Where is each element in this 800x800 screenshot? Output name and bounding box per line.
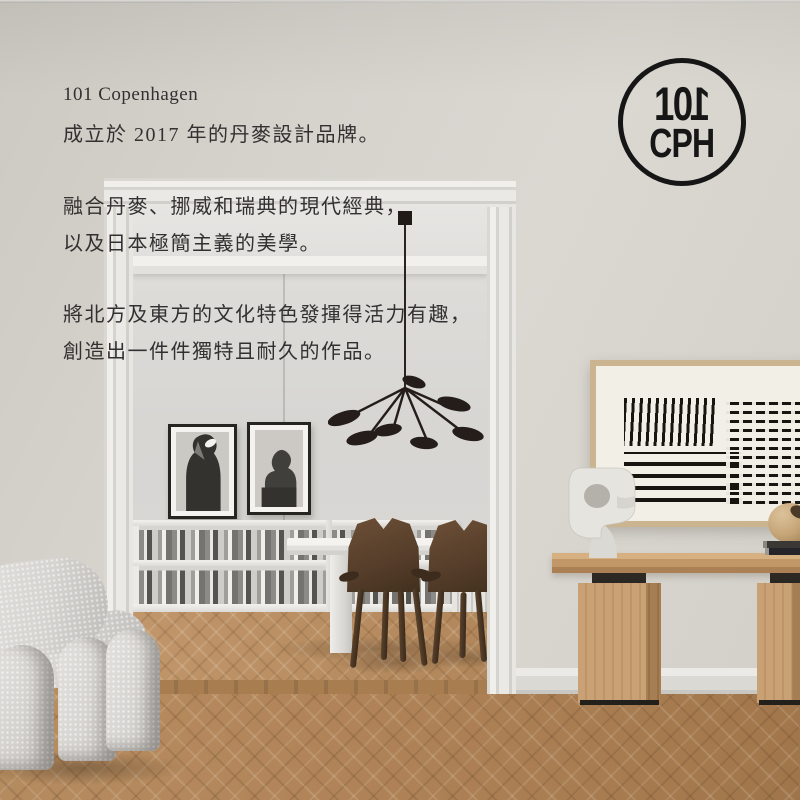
intro-line: 將北方及東方的文化特色發揮得活力有趣， [63, 298, 472, 327]
shelf-board [133, 520, 460, 526]
brand-banner: 101 Copenhagen 成立於 2017 年的丹麥設計品牌。 融合丹麥、挪… [0, 0, 800, 800]
abstract-bust-artwork [176, 432, 229, 511]
intro-line: 融合丹麥、挪威和瑞典的現代經典， [63, 190, 407, 219]
console-foot-shadow [759, 700, 800, 705]
logo-10: 10 [654, 83, 692, 124]
boucle-leg [0, 645, 54, 770]
console-leg [578, 583, 661, 703]
wall-art-portrait-left [168, 424, 237, 519]
book [765, 548, 800, 555]
intro-line: 創造出一件件獨特且耐久的作品。 [63, 335, 386, 364]
logo-numerals: 10 1 [654, 83, 710, 124]
brand-name: 101 Copenhagen [63, 84, 198, 106]
intro-line: 成立於 2017 年的丹麥設計品牌。 [63, 118, 380, 147]
console-leg [757, 583, 800, 703]
boucle-lounge-chair [0, 555, 200, 800]
brand-intro-text: 101 Copenhagen 成立於 2017 年的丹麥設計品牌。 融合丹麥、挪… [63, 0, 523, 400]
abstract-figure-artwork [255, 430, 303, 507]
console-foot-shadow [580, 700, 659, 705]
art-dash-rows [726, 396, 800, 504]
intro-line: 以及日本極簡主義的美學。 [63, 227, 321, 256]
boucle-leg [106, 629, 160, 751]
chair-leg [459, 592, 466, 658]
ceramic-bowl [768, 503, 800, 543]
logo-flipped-1: 1 [691, 83, 710, 124]
art-vertical-strokes [624, 398, 716, 446]
wall-art-portrait-right [247, 422, 311, 515]
dining-chair-right [428, 520, 487, 592]
bowl-opening [788, 503, 800, 521]
brand-logo-badge: 10 1 CPH [618, 58, 746, 186]
cobra-sculpture [565, 466, 641, 560]
art-grid-strokes [624, 452, 742, 502]
logo-letters: CPH [649, 125, 714, 161]
book [763, 541, 800, 548]
stacked-books [763, 541, 800, 555]
